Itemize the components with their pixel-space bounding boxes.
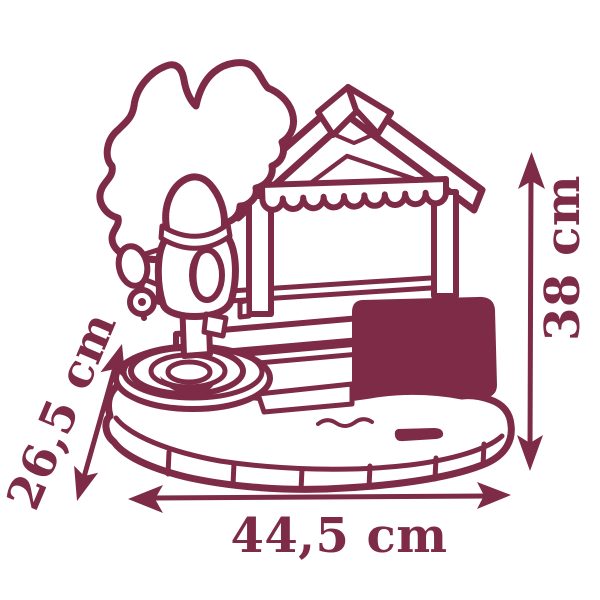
ridge-cap-notch-line	[333, 133, 377, 143]
skirt-seam-6	[483, 444, 484, 465]
product-diagram-svg: 38 cm 44,5 cm 26,5 cm	[0, 0, 600, 600]
height-dimension-label: 38 cm	[535, 175, 591, 341]
left-post-foot	[240, 300, 249, 317]
skirt-seam-4	[369, 466, 370, 487]
ridge-cap-right-face	[348, 87, 391, 134]
skirt-seam-3	[301, 469, 302, 490]
dimension-width: 44,5 cm	[128, 482, 511, 564]
right-post	[434, 192, 456, 296]
left-post	[249, 196, 271, 314]
width-dimension-label: 44,5 cm	[230, 508, 447, 564]
valve-wheel-hub	[138, 298, 146, 306]
skirt-seam-1	[168, 452, 169, 474]
height-dimension-line	[530, 176, 531, 450]
dimension-height: 38 cm	[517, 152, 591, 471]
width-dimension-line	[152, 496, 490, 498]
skirt-seam-2	[233, 463, 234, 485]
pump-downspout	[204, 314, 226, 336]
scalloped-valance	[262, 179, 446, 210]
basin-inner-bowl	[168, 362, 210, 382]
skirt-seam-5	[435, 458, 436, 479]
